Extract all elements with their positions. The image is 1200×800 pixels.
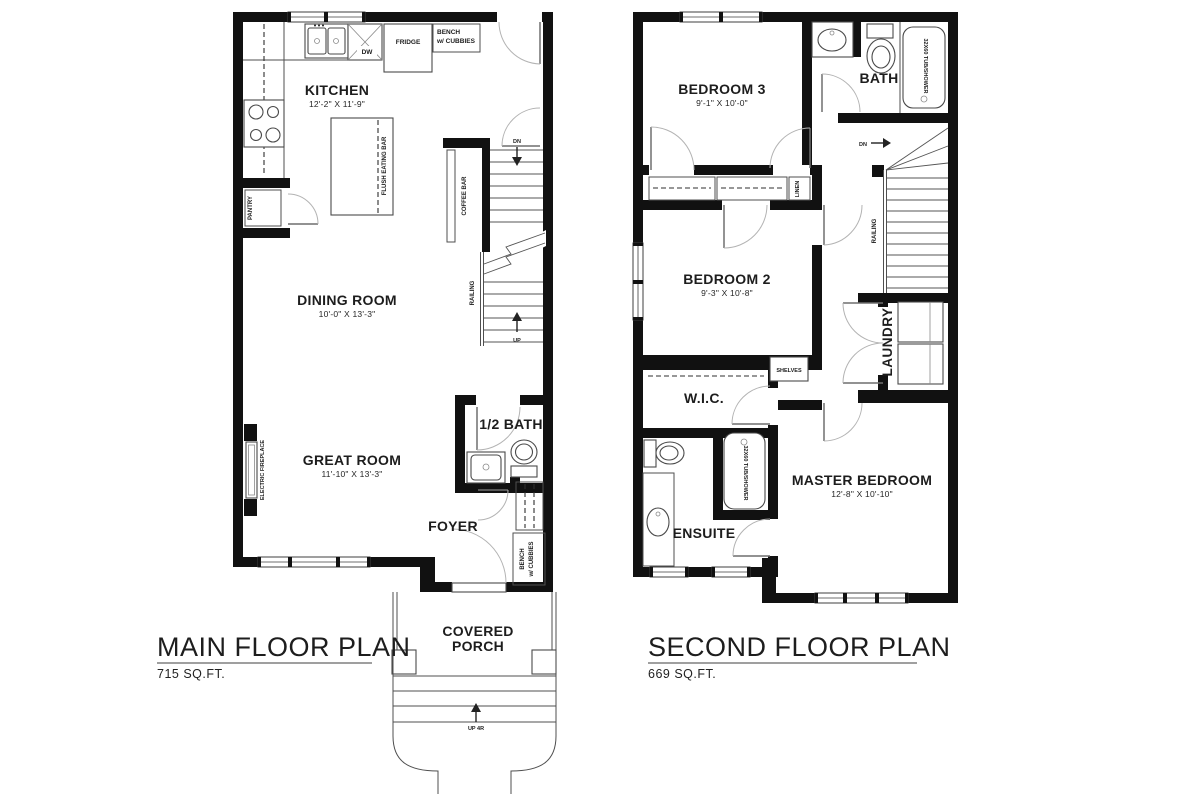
dining-room-name: DINING ROOM — [297, 292, 397, 308]
second-floor-plan: LINEN RAILING DN — [633, 12, 958, 681]
bedroom3-dims: 9'-1" X 10'-0" — [696, 98, 748, 108]
bench-label-line2: w/ CUBBIES — [436, 38, 476, 45]
great-room-dims: 11'-10" X 13'-3" — [322, 469, 383, 479]
master-name: MASTER BEDROOM — [792, 472, 932, 488]
kitchen-island: FLUSH EATING BAR — [331, 118, 393, 215]
main-floor-plan: DW FRIDGE BENCH w/ CUBBIES FLUSH EATING … — [157, 12, 556, 794]
second-floor-area: 669 SQ.FT. — [648, 667, 716, 681]
dn-label: DN — [513, 139, 521, 145]
kitchen-name: KITCHEN — [305, 82, 369, 98]
railing-label: RAILING — [470, 280, 476, 305]
bench-cubbies-top: BENCH w/ CUBBIES — [433, 24, 480, 52]
great-room-name: GREAT ROOM — [303, 452, 401, 468]
bath-tub-label: 32X60 TUB/SHOWER — [922, 38, 928, 93]
bedroom3-closet-door — [651, 127, 694, 170]
fridge-label: FRIDGE — [396, 39, 421, 46]
half-bath-toilet — [511, 440, 537, 477]
foyer-closet-door — [478, 490, 508, 520]
bedroom2-dims: 9'-3" X 10'-8" — [701, 288, 753, 298]
half-bath-name: 1/2 BATH — [479, 416, 543, 432]
wic-name: W.I.C. — [684, 390, 724, 406]
bedroom3-name: BEDROOM 3 — [678, 81, 766, 97]
up-label: UP — [513, 338, 521, 344]
pantry-label: PANTRY — [248, 196, 254, 220]
flush-eating-bar-label: FLUSH EATING BAR — [382, 136, 388, 195]
kitchen-window — [288, 12, 365, 22]
kitchen-dims: 12'-2" X 11'-9" — [309, 99, 365, 109]
floor-plan-sheet: DW FRIDGE BENCH w/ CUBBIES FLUSH EATING … — [0, 0, 1200, 800]
main-stairs: RAILING DN UP — [470, 139, 546, 346]
dn2-arrow: DN — [859, 138, 891, 148]
coffee-bar-label: COFFEE BAR — [462, 176, 468, 216]
dn2-label: DN — [859, 142, 867, 148]
main-floor-title: MAIN FLOOR PLAN — [157, 632, 411, 662]
dining-room-dims: 10'-0" X 13'-3" — [319, 309, 376, 319]
foyer-name: FOYER — [428, 518, 478, 534]
laundry-fixtures: LAUNDRY — [880, 302, 943, 384]
main-title-block: MAIN FLOOR PLAN 715 SQ.FT. — [157, 632, 411, 681]
great-room-window — [258, 557, 370, 567]
second-stairs: RAILING DN — [859, 128, 948, 293]
up-4r-label: UP 4R — [468, 726, 484, 732]
bedroom2-window — [633, 243, 643, 320]
bath-toilet — [867, 24, 895, 73]
laundry-door-upper — [843, 303, 883, 343]
dishwasher: DW — [348, 24, 382, 60]
bath-door — [822, 74, 860, 112]
second-title-block: SECOND FLOOR PLAN 669 SQ.FT. — [648, 632, 951, 681]
porch-name-line2: PORCH — [452, 638, 504, 654]
master-window — [815, 593, 908, 603]
ensuite-window-left — [650, 567, 688, 577]
bath-name: BATH — [859, 70, 898, 86]
porch-name-line1: COVERED — [442, 623, 513, 639]
bath-sink — [812, 22, 853, 57]
bench-cubbies-foyer: BENCH w/ CUBBIES — [513, 533, 545, 585]
railing2-label: RAILING — [872, 218, 878, 243]
fridge: FRIDGE — [384, 24, 432, 72]
master-door — [824, 403, 862, 441]
bedroom3-window — [680, 12, 762, 22]
laundry-label: LAUNDRY — [880, 308, 895, 377]
ensuite-door — [733, 519, 770, 556]
electric-fireplace-label: ELECTRIC FIREPLACE — [260, 440, 266, 501]
kitchen-sink — [305, 24, 348, 58]
bath-fixtures: 32X60 TUB/SHOWER — [812, 22, 945, 113]
porch-up-arrow: UP 4R — [468, 703, 484, 732]
bedroom2-door — [724, 205, 767, 248]
half-bath-vanity — [467, 452, 505, 483]
pantry-door — [288, 194, 318, 224]
dishwasher-label: DW — [362, 49, 374, 56]
up-arrow: UP — [512, 312, 522, 344]
coffee-bar: COFFEE BAR — [447, 150, 468, 242]
bedroom2-name: BEDROOM 2 — [683, 271, 771, 287]
shelves-label: SHELVES — [776, 368, 802, 374]
laundry-door-lower — [843, 343, 883, 383]
bench-foyer-line2: w/ CUBBIES — [529, 541, 535, 577]
entry-door — [452, 529, 506, 592]
linen-label: LINEN — [795, 181, 801, 198]
wic-door — [732, 386, 770, 424]
bench-label-line1: BENCH — [437, 29, 460, 36]
second-floor-title: SECOND FLOOR PLAN — [648, 632, 951, 662]
ensuite-fixtures: 32X60 TUB/SHOWER — [643, 433, 765, 566]
electric-fireplace: ELECTRIC FIREPLACE — [246, 440, 266, 501]
ensuite-toilet — [644, 440, 684, 467]
stove — [244, 100, 284, 147]
ensuite-name: ENSUITE — [673, 525, 736, 541]
master-dims: 12'-8" X 10'-10" — [831, 489, 893, 499]
ensuite-vanity — [643, 473, 674, 566]
stair-top-door — [502, 108, 540, 146]
ensuite-window-right — [712, 567, 750, 577]
ensuite-tub-label: 32X60 TUB/SHOWER — [742, 445, 748, 500]
bench-foyer-line1: BENCH — [520, 548, 526, 569]
ensuite-tub: 32X60 TUB/SHOWER — [724, 433, 765, 509]
floor-plan-drawing: DW FRIDGE BENCH w/ CUBBIES FLUSH EATING … — [0, 0, 1200, 800]
main-floor-area: 715 SQ.FT. — [157, 667, 225, 681]
hall-door — [824, 205, 862, 245]
back-door — [499, 22, 540, 64]
bath-tub: 32X60 TUB/SHOWER — [900, 22, 945, 113]
hall-closets: LINEN — [649, 177, 810, 200]
pantry: PANTRY — [245, 190, 281, 226]
